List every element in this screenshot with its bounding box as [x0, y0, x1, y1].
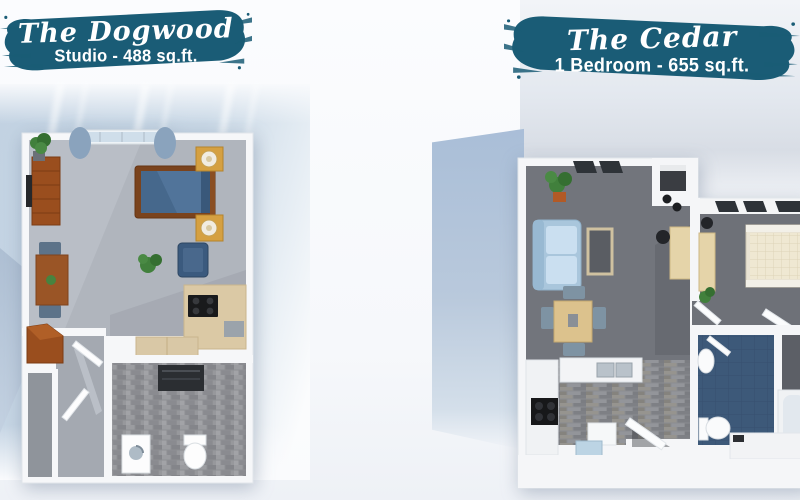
dogwood-title: The Dogwood: [18, 15, 234, 49]
cedar-bedroom-windows: [700, 199, 800, 214]
tv: [26, 175, 32, 207]
cedar-bed: [746, 225, 800, 287]
dogwood-closet-wall: [52, 369, 58, 477]
dogwood-armchair: [178, 243, 208, 277]
pillow: [201, 171, 210, 213]
dogwood-closet-floor: [28, 373, 52, 477]
cedar-floor-plan: [430, 115, 800, 500]
chair: [563, 343, 585, 356]
dogwood-banner: The Dogwood Studio - 488 sq.ft.: [0, 4, 252, 78]
dogwood-floor-plan: [0, 115, 300, 500]
cedar-subtitle: 1 Bedroom - 655 sq.ft.: [555, 54, 750, 77]
curtain: [154, 127, 176, 159]
wall-shelf: [224, 321, 244, 337]
curtain: [69, 127, 91, 159]
toilet-bowl: [706, 417, 730, 439]
sink-basin: [597, 363, 614, 377]
cooktop: [531, 398, 558, 425]
toilet-bowl: [184, 443, 206, 469]
chair: [563, 286, 585, 299]
cedar-bottom-wall-right: [692, 459, 800, 488]
desk-chair: [656, 230, 670, 244]
cedar-banner: The Cedar 1 Bedroom - 655 sq.ft.: [504, 10, 800, 88]
chair: [39, 305, 61, 318]
sink-basin: [616, 363, 632, 377]
dogwood-subtitle: Studio - 488 sq.ft.: [54, 46, 197, 67]
dogwood-section: The Dogwood Studio - 488 sq.ft.: [0, 0, 400, 500]
desk-stool: [701, 217, 713, 229]
floorplan-flyer: The Dogwood Studio - 488 sq.ft.: [0, 0, 800, 500]
chair: [593, 307, 606, 329]
walkin-closet-floor: [782, 335, 800, 390]
cedar-coffee-table: [588, 229, 612, 274]
chair: [39, 242, 61, 255]
cedar-title: The Cedar: [566, 22, 737, 56]
dogwood-bed: [135, 166, 215, 218]
pedestal-sink: [698, 349, 714, 373]
cedar-section: The Cedar 1 Bedroom - 655 sq.ft.: [400, 0, 800, 500]
cedar-bathroom: [692, 325, 800, 459]
cooktop: [188, 295, 218, 317]
headboard: [210, 168, 215, 216]
cedar-sofa: [533, 220, 581, 290]
chair: [541, 307, 554, 329]
table-plant: [46, 275, 56, 285]
